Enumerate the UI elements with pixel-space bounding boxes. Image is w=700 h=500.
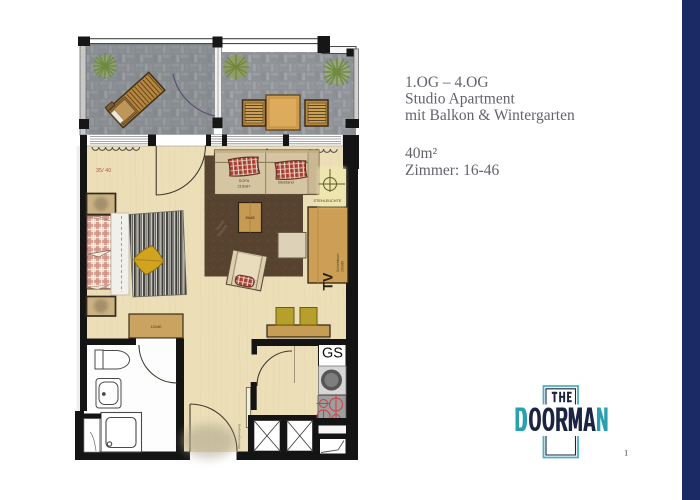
- svg-text:1.OG – 4.OG: 1.OG – 4.OG: [405, 74, 489, 91]
- svg-text:mit Balkon & Wintergarten: mit Balkon & Wintergarten: [405, 107, 575, 124]
- svg-text:45x85: 45x85: [245, 216, 254, 220]
- svg-text:Studio Apartment: Studio Apartment: [405, 91, 515, 108]
- svg-text:150x85: 150x85: [341, 261, 345, 272]
- svg-text:215x87: 215x87: [237, 184, 251, 189]
- svg-text:Wohnungseingang: Wohnungseingang: [237, 424, 241, 449]
- svg-text:Beistand: Beistand: [278, 180, 294, 185]
- svg-text:STEHLEUCHTE: STEHLEUCHTE: [314, 199, 342, 203]
- svg-text:GS: GS: [322, 346, 343, 362]
- svg-text:35/ 40: 35/ 40: [96, 168, 111, 174]
- svg-text:110x60: 110x60: [151, 325, 162, 329]
- svg-text:1: 1: [624, 448, 628, 458]
- svg-text:Schreibtisch: Schreibtisch: [336, 253, 340, 272]
- svg-text:Zimmer: 16-46: Zimmer: 16-46: [405, 162, 500, 179]
- svg-text:SOFA: SOFA: [239, 178, 250, 183]
- svg-text:TV: TV: [320, 272, 336, 291]
- svg-text:40m²: 40m²: [405, 145, 438, 162]
